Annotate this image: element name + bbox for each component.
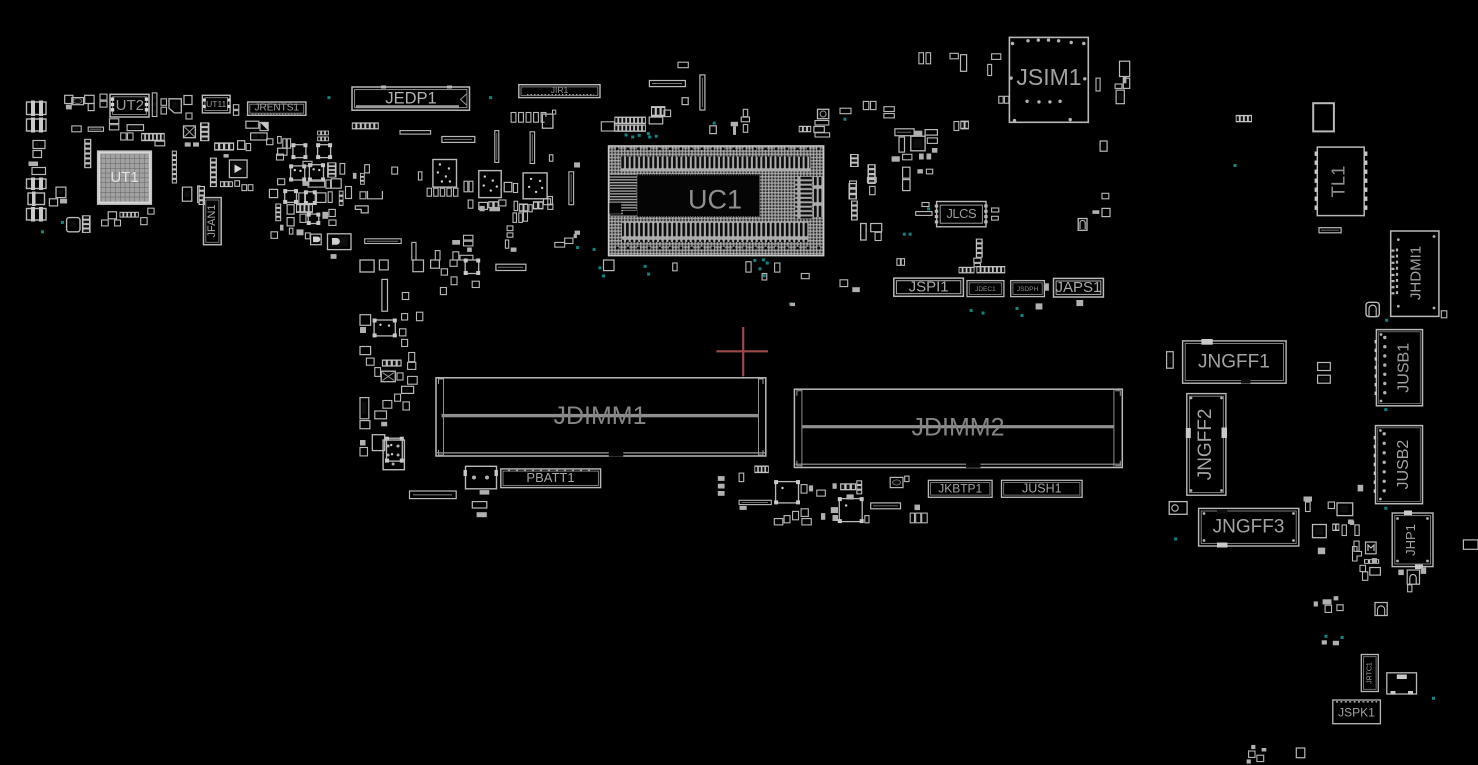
svg-text:JLCS: JLCS (946, 206, 977, 221)
svg-text:JAPS1: JAPS1 (1055, 279, 1101, 296)
svg-text:JDIMM2: JDIMM2 (911, 413, 1004, 441)
svg-text:JUSH1: JUSH1 (1022, 482, 1062, 496)
svg-text:JNGFF2: JNGFF2 (1195, 409, 1216, 481)
svg-text:JSIM1: JSIM1 (1016, 64, 1081, 90)
svg-text:JDIMM1: JDIMM1 (553, 402, 646, 430)
svg-text:JNGFF1: JNGFF1 (1198, 352, 1270, 373)
svg-text:UC1: UC1 (688, 185, 742, 215)
svg-text:JIR1: JIR1 (551, 85, 569, 95)
svg-text:PBATT1: PBATT1 (526, 470, 574, 485)
svg-text:JKBTP1: JKBTP1 (938, 481, 982, 495)
svg-text:UT1: UT1 (110, 169, 138, 186)
svg-text:JRTC1: JRTC1 (1367, 662, 1374, 684)
svg-text:JSPK1: JSPK1 (1338, 705, 1375, 719)
svg-text:JHDMI1: JHDMI1 (1407, 246, 1424, 300)
svg-text:JFAN1: JFAN1 (206, 204, 218, 237)
svg-text:JDEC1: JDEC1 (975, 286, 996, 293)
svg-text:UT11: UT11 (206, 99, 226, 109)
svg-text:JEDP1: JEDP1 (385, 90, 436, 108)
svg-text:TL1: TL1 (1327, 166, 1348, 198)
svg-text:JSPI1: JSPI1 (909, 279, 949, 296)
svg-text:JHP1: JHP1 (1403, 524, 1418, 556)
svg-text:JNGFF3: JNGFF3 (1213, 517, 1285, 538)
svg-text:JUSB2: JUSB2 (1395, 440, 1412, 490)
svg-text:JUSB1: JUSB1 (1396, 343, 1413, 393)
svg-text:JSDPH: JSDPH (1017, 286, 1039, 293)
svg-text:JRENTS1: JRENTS1 (254, 103, 299, 114)
svg-text:UT2: UT2 (116, 97, 144, 114)
